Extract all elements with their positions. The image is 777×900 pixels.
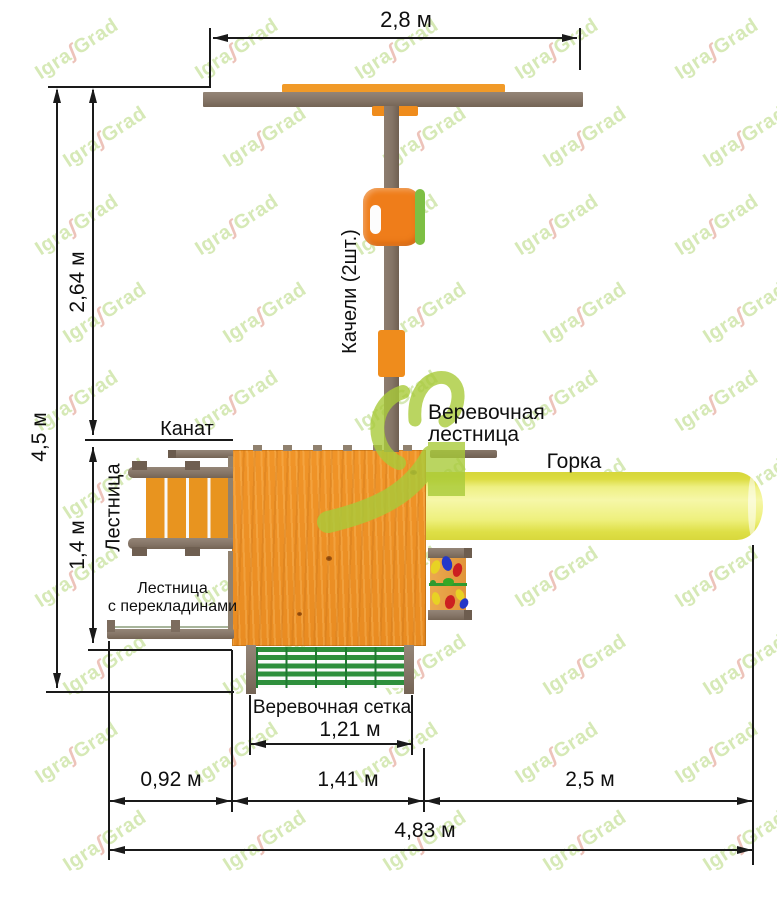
rope-rod [168, 450, 233, 458]
igragrad-logo-watermark [300, 358, 480, 538]
dim-top-arrow-right [562, 34, 577, 42]
dim-left-total-arrow-top [53, 88, 61, 103]
watermark-text: IgraʃGrad [219, 806, 311, 877]
slide-end-cap [748, 475, 756, 537]
swing-seat-slot [370, 205, 381, 234]
watermark-text: IgraʃGrad [539, 102, 631, 173]
dim-top-line [213, 37, 577, 39]
watermark-text: IgraʃGrad [539, 278, 631, 349]
dim-net-arrow-right [397, 740, 412, 748]
platform-rail-tab [253, 445, 262, 451]
watermark-text: IgraʃGrad [699, 806, 777, 877]
watermark-text: IgraʃGrad [59, 806, 151, 877]
rope-label: Канат [140, 419, 234, 440]
rung-ladder-label-line1: Лестница [107, 581, 238, 598]
rope-ladder-label-line2: лестница [428, 424, 519, 446]
dim-bottom-middle-label: 1,41 м [283, 769, 413, 791]
dim-bottom-left-arrow-left [110, 797, 125, 805]
climb-hold-green-knob [430, 580, 436, 586]
watermark-text: IgraʃGrad [699, 630, 777, 701]
dim-net-line [251, 743, 412, 745]
dim-net-arrow-left [251, 740, 266, 748]
watermark-text: IgraʃGrad [511, 190, 603, 261]
ladder-foot [132, 461, 147, 470]
dim-bottom-right-arrow-right [737, 797, 752, 805]
dim-left-lower-arrow-bottom [89, 628, 97, 643]
watermark-text: IgraʃGrad [699, 102, 777, 173]
rung-ladder-post [107, 620, 115, 632]
watermark-text: IgraʃGrad [31, 14, 123, 85]
watermark-text: IgraʃGrad [219, 278, 311, 349]
swing-seat-edge [415, 189, 425, 245]
dim-left-upper-line [92, 90, 94, 435]
swing-beam [203, 92, 583, 107]
dim-bottom-total-arrow-left [110, 846, 125, 854]
dim-left-upper-label: 2,64 м [67, 217, 89, 347]
dim-bottom-middle-arrow-left [233, 797, 248, 805]
platform-knot [297, 612, 302, 616]
watermark-text: IgraʃGrad [671, 366, 763, 437]
watermark-text: IgraʃGrad [671, 14, 763, 85]
platform-knot [326, 556, 332, 561]
watermark-text: IgraʃGrad [191, 190, 283, 261]
climb-hold-green-leaf [443, 578, 454, 586]
dim-net-label: 1,21 м [285, 719, 415, 741]
rope-ladder-label-line1: Веревочная [428, 402, 545, 424]
watermark-text: IgraʃGrad [671, 718, 763, 789]
rope-net-post-right [404, 645, 414, 694]
dim-bottom-middle-arrow-right [408, 797, 423, 805]
dim-bottom-right-arrow-left [425, 797, 440, 805]
ladder-steps [146, 471, 232, 545]
ladder-foot [185, 461, 200, 470]
rope-rod-cap [168, 450, 176, 458]
slide-label: Горка [538, 451, 610, 473]
watermark-text: IgraʃGrad [219, 102, 311, 173]
dim-left-upper-arrow-bottom [89, 420, 97, 435]
dim-left-lower-label: 1,4 м [67, 480, 89, 610]
dim-left-total-tick [46, 691, 234, 693]
playground-plan-diagram: IgraʃGradIgraʃGradIgraʃGradIgraʃGradIgra… [0, 0, 777, 900]
rung-ladder-label-line2: с перекладинами [99, 599, 246, 616]
dim-left-upper-arrow-top [89, 88, 97, 103]
ladder-foot [185, 547, 200, 556]
watermark-text: IgraʃGrad [699, 278, 777, 349]
dim-left-total-arrow-bottom [53, 673, 61, 688]
dim-bottom-left-line [110, 800, 231, 802]
dim-top-label: 2,8 м [341, 8, 471, 31]
dim-left-total-line [56, 90, 58, 688]
ladder-label: Лестница [104, 443, 125, 573]
swing-label: Качели (2шт.) [340, 226, 361, 357]
climb-wall-rail-bottom-end [464, 610, 472, 620]
watermark-text: IgraʃGrad [539, 806, 631, 877]
dim-right-ext [752, 545, 754, 865]
watermark-text: IgraʃGrad [539, 630, 631, 701]
watermark-text: IgraʃGrad [191, 14, 283, 85]
dim-bottom-right-line [425, 800, 752, 802]
watermark-text: IgraʃGrad [511, 542, 603, 613]
dim-bottom-left-label: 0,92 м [106, 769, 236, 791]
rope-net-label: Веревочная сетка [248, 698, 416, 718]
dim-bottom-right-label: 2,5 м [525, 769, 655, 791]
ladder-foot [132, 547, 147, 556]
dim-bottom-middle-line [233, 800, 423, 802]
dim-top-ext-right [579, 28, 581, 70]
dim-left-lower-line [92, 447, 94, 643]
dim-bottom-ext-1 [108, 641, 110, 860]
climb-wall-rail-top-end [464, 548, 472, 558]
dim-top-ext-left [209, 28, 211, 88]
dim-bottom-total-label: 4,83 м [360, 820, 490, 842]
watermark-text: IgraʃGrad [671, 542, 763, 613]
dim-bottom-total-arrow-right [737, 846, 752, 854]
dim-left-lower-arrow-top [89, 447, 97, 462]
dim-bottom-left-arrow-right [216, 797, 231, 805]
platform-rail-tab [283, 445, 292, 451]
dim-bottom-total-line [110, 849, 752, 851]
dim-top-arrow-left [213, 34, 228, 42]
watermark-text: IgraʃGrad [671, 190, 763, 261]
dim-left-total-label: 4,5 м [29, 372, 51, 502]
rung-ladder-post [171, 620, 180, 632]
watermark-text: IgraʃGrad [511, 14, 603, 85]
dim-top-corner-line [48, 86, 211, 88]
rope-net [256, 647, 404, 688]
watermark-text: IgraʃGrad [59, 102, 151, 173]
rope-net-post-left [246, 645, 256, 694]
